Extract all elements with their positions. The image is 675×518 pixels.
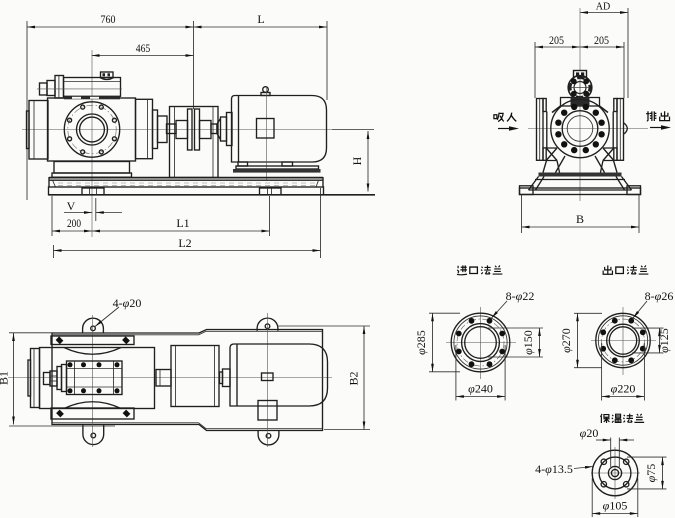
svg-text:V: V (67, 199, 76, 213)
svg-text:AD: AD (596, 2, 610, 13)
svg-text:8-φ22: 8-φ22 (506, 289, 535, 303)
svg-text:8-φ26: 8-φ26 (645, 289, 674, 303)
svg-text:L1: L1 (176, 216, 189, 230)
svg-text:φ285: φ285 (414, 330, 428, 355)
svg-text:L: L (257, 12, 264, 26)
svg-text:φ75: φ75 (644, 464, 658, 483)
svg-text:205: 205 (549, 33, 564, 47)
svg-text:φ220: φ220 (611, 382, 636, 396)
svg-text:B2: B2 (347, 371, 361, 385)
svg-text:B1: B1 (0, 371, 11, 385)
svg-text:φ150: φ150 (521, 330, 535, 355)
svg-text:L2: L2 (178, 236, 191, 250)
svg-text:φ20: φ20 (580, 426, 599, 440)
svg-text:205: 205 (594, 33, 609, 47)
svg-text:4-φ20: 4-φ20 (113, 296, 142, 310)
svg-text:4-φ13.5: 4-φ13.5 (535, 462, 573, 476)
svg-text:H: H (350, 156, 364, 165)
svg-text:φ125: φ125 (657, 328, 671, 353)
svg-text:φ240: φ240 (468, 382, 493, 396)
svg-text:φ105: φ105 (603, 499, 628, 513)
svg-text:200: 200 (67, 216, 81, 230)
svg-text:φ270: φ270 (559, 328, 573, 353)
svg-text:465: 465 (136, 41, 151, 55)
svg-text:760: 760 (101, 12, 116, 26)
svg-text:B: B (576, 212, 584, 226)
